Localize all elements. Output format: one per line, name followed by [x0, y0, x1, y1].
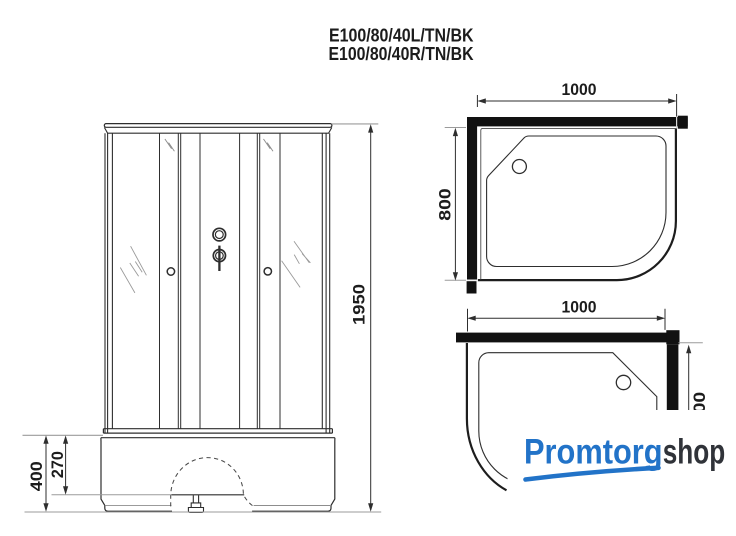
- svg-text:shop: shop: [663, 433, 726, 472]
- svg-text:E100/80/40R/TN/BK: E100/80/40R/TN/BK: [329, 44, 474, 64]
- svg-text:270: 270: [49, 451, 67, 478]
- svg-text:1000: 1000: [562, 299, 597, 317]
- svg-text:Promtorg: Promtorg: [524, 433, 663, 472]
- svg-text:1950: 1950: [351, 284, 369, 325]
- svg-text:400: 400: [28, 461, 46, 491]
- svg-text:800: 800: [437, 188, 455, 221]
- svg-text:E100/80/40L/TN/BK: E100/80/40L/TN/BK: [329, 26, 474, 46]
- svg-text:1000: 1000: [562, 81, 597, 99]
